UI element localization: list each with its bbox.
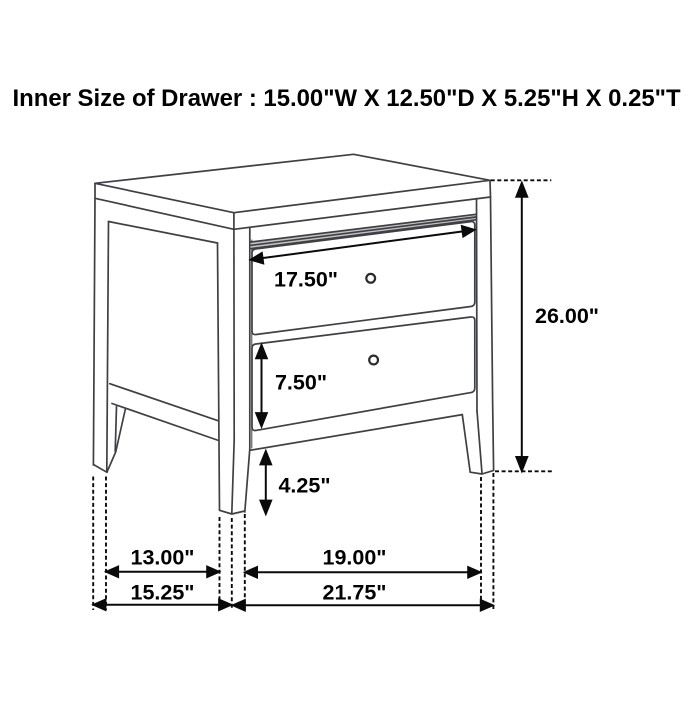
svg-text:19.00": 19.00" — [323, 546, 387, 570]
svg-text:21.75": 21.75" — [323, 581, 387, 605]
svg-text:4.25": 4.25" — [278, 474, 330, 498]
svg-text:15.25": 15.25" — [131, 581, 195, 605]
svg-text:26.00": 26.00" — [535, 304, 599, 328]
svg-text:7.50": 7.50" — [275, 371, 327, 395]
svg-text:Inner Size of Drawer : 15.00"W: Inner Size of Drawer : 15.00"W X 12.50"D… — [13, 85, 681, 112]
svg-text:13.00": 13.00" — [131, 546, 195, 570]
svg-text:17.50": 17.50" — [274, 268, 338, 292]
